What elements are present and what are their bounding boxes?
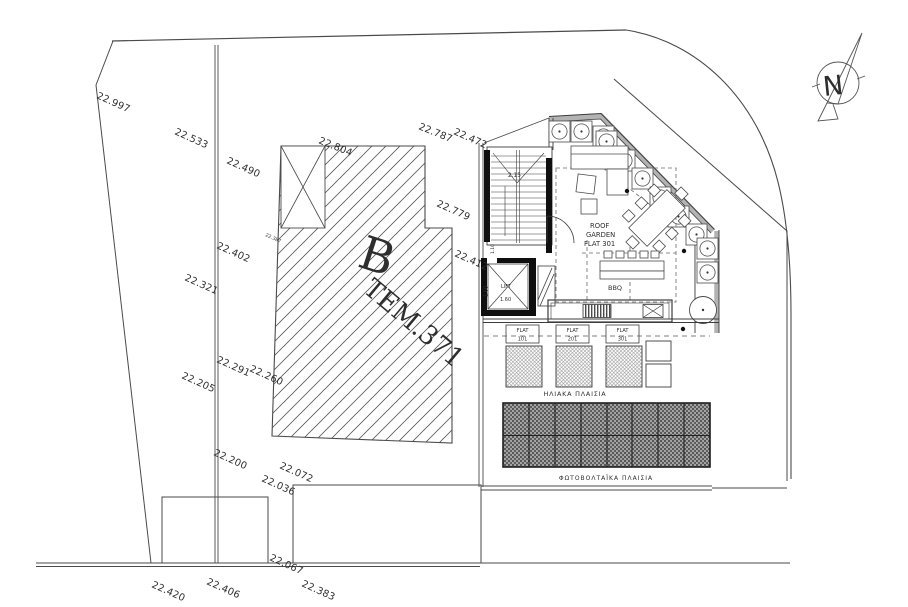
solar-tank (646, 341, 671, 361)
flat-box-1-num: 101 (518, 337, 528, 343)
spot-level: 22.406 (205, 577, 242, 601)
roof-garden-label-1: ROOF (590, 222, 609, 230)
shaft-x-box (281, 146, 325, 228)
inner-boundary-double-line (215, 45, 218, 563)
bbq-label: BBQ (608, 284, 622, 292)
spot-level: 22.490 (225, 156, 262, 180)
pv-array: ΦΩΤΟΒΟΛΤΑΪΚΑ ΠΛΑΙΣΙΑ (503, 403, 710, 482)
spot-level: 22.787 (417, 122, 454, 145)
lobby-dim: 1.10 (490, 244, 496, 254)
bbq-area (600, 251, 664, 279)
lift-shaft: LIFT 1.60 1.60 1.10 (481, 244, 536, 316)
flat-box-2-num: 201 (568, 337, 578, 343)
spot-level: 22.067 (268, 553, 305, 577)
building-b: B TEM.371 (272, 146, 469, 443)
north-arrow-icon: N (812, 33, 865, 121)
spot-level: 22.420 (150, 580, 187, 604)
spot-level: 22.402 (215, 241, 252, 265)
solar-collector (556, 346, 592, 387)
solar-panels: FLAT 101 FLAT 201 FLAT 301 ΗΛΙΑΚΑ ΠΛΑΙΣΙ… (484, 325, 710, 398)
stair-lift-core: 2.15 LIFT 1.60 1.60 1.10 (481, 147, 574, 316)
vent-grille (583, 305, 611, 318)
pv-label: ΦΩΤΟΒΟΛΤΑΪΚΑ ΠΛΑΙΣΙΑ (559, 475, 653, 482)
drawing-canvas: B TEM.371 (0, 0, 908, 607)
site-plan-drawing: B TEM.371 (0, 0, 908, 607)
staircase: 2.15 (484, 147, 552, 253)
planters (549, 121, 718, 283)
spot-level: 22.533 (173, 127, 210, 151)
flat-box-1-label: FLAT (517, 328, 530, 334)
spot-level: 22.036 (260, 474, 297, 498)
lift-label: LIFT (501, 284, 512, 290)
solar-collector (506, 346, 542, 387)
neighbour-structure (293, 485, 481, 563)
spot-level: 22.321 (183, 273, 220, 297)
stair-dimension: 2.15 (508, 173, 521, 179)
spot-level: 22.383 (300, 579, 337, 603)
flat-box-3-label: FLAT (617, 328, 630, 334)
skylight-x-box (643, 305, 663, 318)
plot-south-edge (481, 486, 787, 490)
roof-garden-label-3: FLAT 301 (584, 240, 615, 248)
spot-level: 22.412 (453, 249, 490, 273)
west-boundary-line (96, 85, 151, 563)
lift-width-dim: 1.60 (500, 297, 511, 303)
spot-level: 22.779 (435, 199, 472, 223)
flat-box-2-label: FLAT (567, 328, 580, 334)
lift-depth-dim: 1.60 (484, 286, 490, 297)
spot-level: 22.472 (452, 127, 489, 151)
solar-tank (646, 364, 671, 387)
wall (484, 150, 490, 242)
flat-box-3-num: 301 (618, 337, 628, 343)
sofa-set (571, 146, 628, 214)
spot-level: 22.291 (215, 355, 252, 379)
solar-collector (606, 346, 642, 387)
spot-level: 22.205 (180, 371, 217, 395)
roof-garden-label-2: GARDEN (586, 231, 615, 239)
south-boundary-line (36, 563, 790, 567)
solar-label: ΗΛΙΑΚΑ ΠΛΑΙΣΙΑ (544, 390, 607, 398)
spot-level: 22.200 (212, 448, 249, 472)
coffee-table (581, 199, 597, 214)
spot-level: 22.997 (95, 91, 132, 115)
north-letter: N (821, 70, 844, 103)
